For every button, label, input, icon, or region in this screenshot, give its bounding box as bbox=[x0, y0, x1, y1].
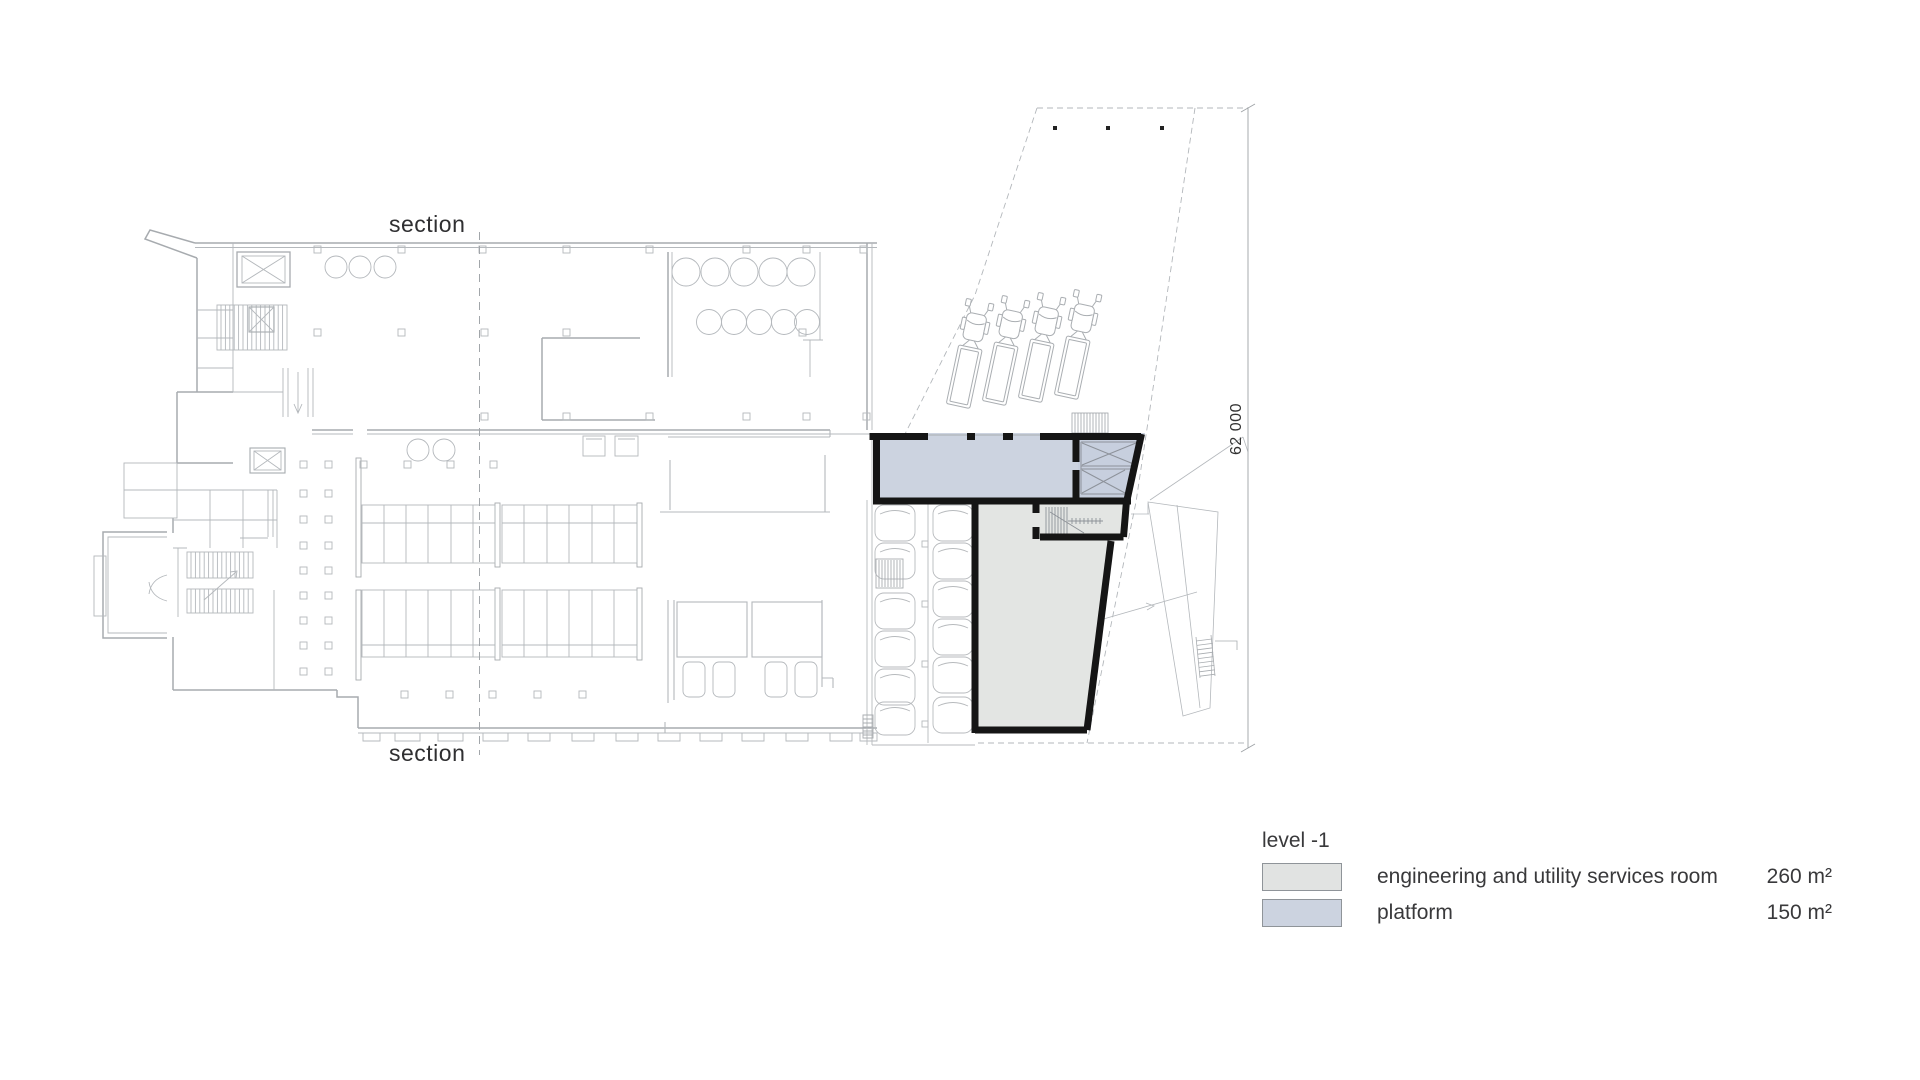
annex-stair-icon bbox=[1196, 635, 1237, 678]
tanks-small bbox=[325, 256, 396, 278]
column-grid-dots bbox=[300, 246, 870, 698]
level-minus1-plan bbox=[870, 413, 1146, 733]
legend-row-engineering: engineering and utility services room 26… bbox=[1262, 862, 1832, 891]
tank-room bbox=[672, 252, 823, 377]
stair-top-left bbox=[217, 305, 287, 350]
platform-label: platform bbox=[1377, 901, 1767, 925]
dimension-text: 62 000 bbox=[1228, 384, 1246, 474]
floor-plan-page: section section 62 000 level -1 engineer… bbox=[0, 0, 1920, 1080]
parking-stair-hatch bbox=[863, 559, 903, 738]
engineering-area: 260 m² bbox=[1767, 865, 1832, 889]
engineering-label: engineering and utility services room bbox=[1377, 865, 1767, 889]
legend-row-platform: platform 150 m² bbox=[1262, 898, 1832, 927]
legend: level -1 engineering and utility service… bbox=[1262, 829, 1832, 934]
legend-title: level -1 bbox=[1262, 829, 1832, 853]
section-label-bottom: section bbox=[389, 740, 465, 767]
loading-trucks bbox=[944, 289, 1102, 408]
engineering-swatch bbox=[1262, 863, 1342, 891]
shaft-box-2 bbox=[250, 448, 285, 473]
site-dots bbox=[1053, 126, 1164, 130]
section-label-top: section bbox=[389, 211, 465, 238]
right-rooms bbox=[660, 430, 833, 733]
entrance-door-arcs bbox=[149, 575, 167, 601]
platform-swatch bbox=[1262, 899, 1342, 927]
existing-building-plan bbox=[94, 230, 877, 741]
grid-tables bbox=[356, 458, 642, 680]
platform-area: 150 m² bbox=[1767, 901, 1832, 925]
corridor-arrow bbox=[283, 368, 313, 417]
exterior-stair bbox=[1072, 413, 1108, 433]
stairs-mid-left bbox=[178, 548, 253, 617]
equipment-row bbox=[683, 662, 817, 697]
parking-cars bbox=[875, 505, 973, 735]
elevator-box-1 bbox=[237, 252, 290, 287]
